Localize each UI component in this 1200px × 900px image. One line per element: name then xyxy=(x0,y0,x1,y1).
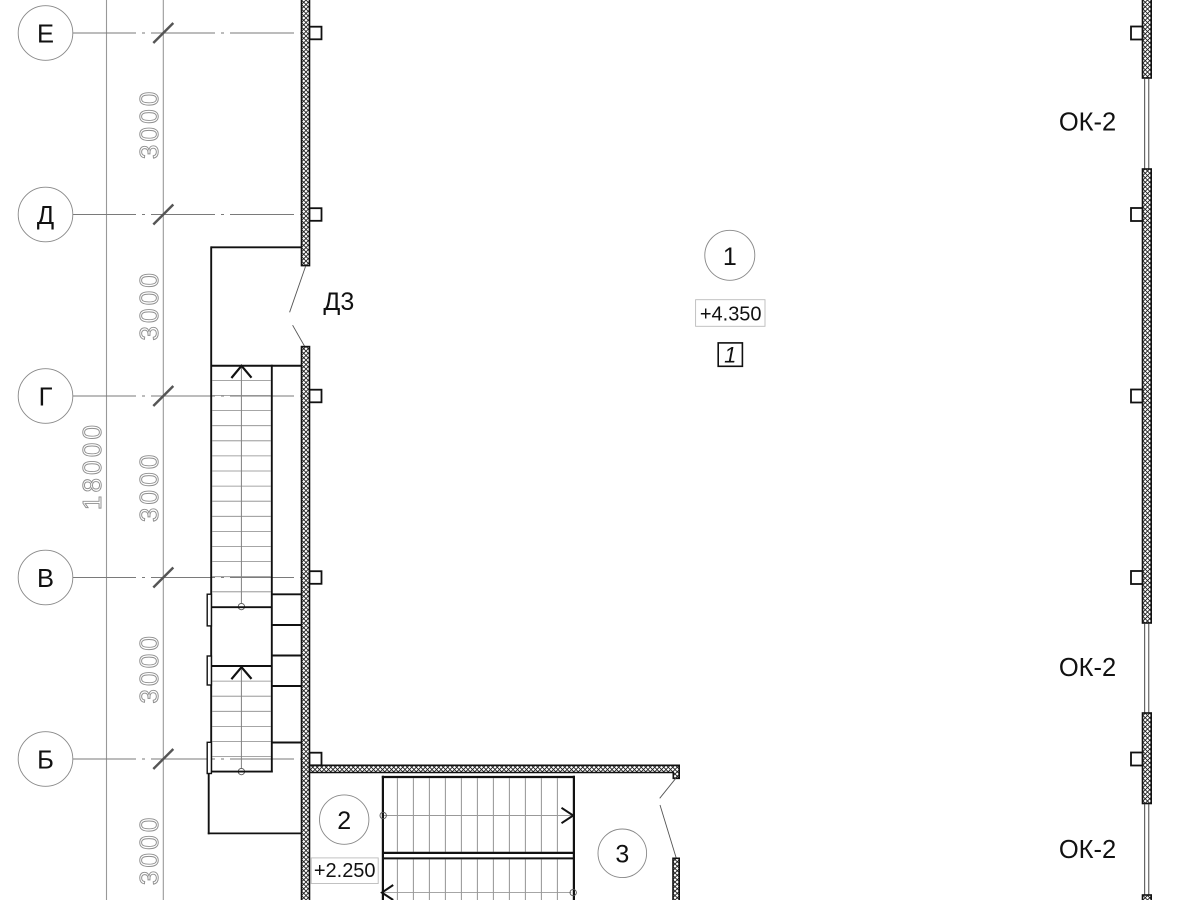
svg-text:3: 3 xyxy=(615,841,629,869)
svg-text:3000: 3000 xyxy=(134,633,164,704)
svg-text:+2.250: +2.250 xyxy=(314,860,376,882)
svg-text:Д3: Д3 xyxy=(323,288,354,316)
svg-text:ОК-2: ОК-2 xyxy=(1059,108,1116,136)
svg-text:В: В xyxy=(37,565,54,593)
svg-text:1: 1 xyxy=(724,342,736,367)
svg-text:3000: 3000 xyxy=(134,814,164,885)
svg-text:3000: 3000 xyxy=(134,88,164,159)
svg-text:1: 1 xyxy=(723,243,737,271)
svg-text:Е: Е xyxy=(37,20,54,48)
svg-text:+4.350: +4.350 xyxy=(700,303,762,325)
svg-text:2: 2 xyxy=(337,807,351,835)
svg-text:18000: 18000 xyxy=(77,422,107,510)
svg-text:3000: 3000 xyxy=(134,270,164,341)
svg-text:Д: Д xyxy=(37,202,54,230)
svg-text:ОК-2: ОК-2 xyxy=(1059,654,1116,682)
svg-text:Г: Г xyxy=(39,383,53,411)
svg-text:3000: 3000 xyxy=(134,451,164,522)
svg-text:Б: Б xyxy=(37,746,54,774)
svg-text:ОК-2: ОК-2 xyxy=(1059,836,1116,864)
